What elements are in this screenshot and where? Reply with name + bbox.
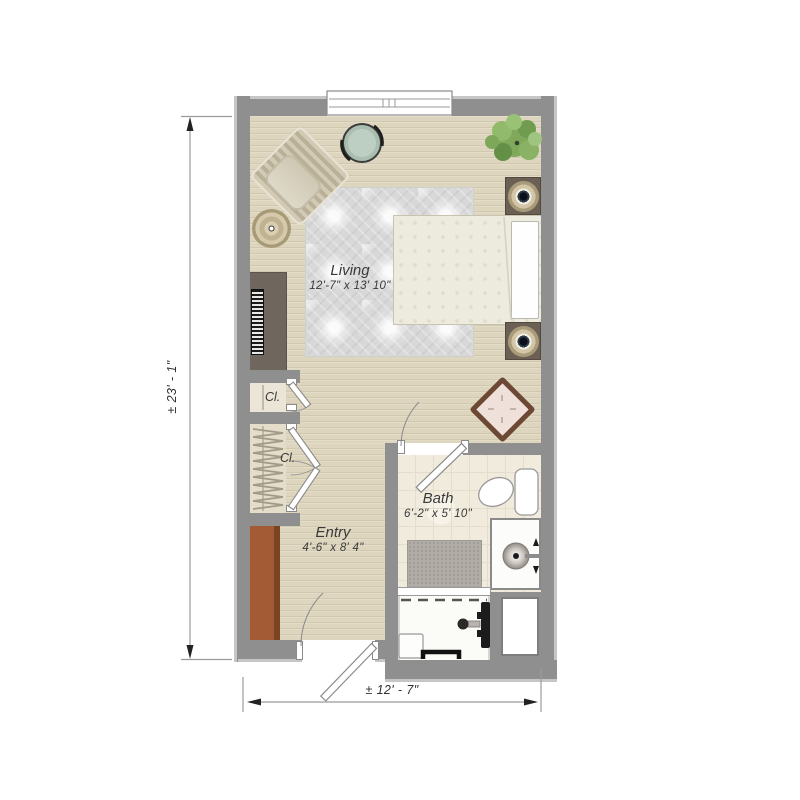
- window-icon: [327, 91, 452, 115]
- wall-right: [541, 96, 557, 682]
- bath-mat: [407, 540, 482, 590]
- closet-upper-jamb-top: [286, 378, 297, 385]
- closet-lower-floor: [250, 424, 286, 513]
- bath-door-jamb-left: [397, 440, 405, 454]
- dimension-width-label: ± 12' - 7": [322, 683, 462, 697]
- closet-lower-jamb-bottom: [286, 505, 297, 512]
- wall-bottom-entry-left: [238, 640, 302, 662]
- entry-door-jamb-left: [296, 641, 303, 660]
- living-dims: 12'-7" x 13' 10": [280, 280, 420, 293]
- floor-plan: Living 12'-7" x 13' 10" Entry 4'-6" x 8'…: [0, 0, 800, 800]
- living-name: Living: [280, 262, 420, 279]
- closet-lower-label: Cl.: [280, 451, 295, 465]
- bath-door-jamb-right: [461, 440, 469, 454]
- closet-upper-label: Cl.: [265, 390, 280, 404]
- wall-bath-bottom: [385, 660, 557, 682]
- utility-closet: [501, 597, 539, 656]
- dimension-height-label: ± 23' - 1": [165, 322, 179, 452]
- dimension-line-vertical: [181, 117, 232, 660]
- table-lamp-bottom-icon: [508, 326, 539, 357]
- entry-name: Entry: [273, 524, 393, 541]
- entry-label: Entry 4'-6" x 8' 4": [273, 524, 393, 555]
- entry-door-jamb-right: [372, 641, 379, 660]
- closet-upper-jamb-bottom: [286, 404, 297, 411]
- table-lamp-top-icon: [508, 181, 539, 212]
- wall-bath-top: [463, 443, 541, 455]
- bath-label: Bath 6'-2" x 5' 10": [378, 490, 498, 521]
- shower-floor: [398, 592, 490, 662]
- shower-curtain-rail: [397, 587, 491, 596]
- living-label: Living 12'-7" x 13' 10": [280, 262, 420, 293]
- round-table: [342, 123, 382, 163]
- closet-lower-jamb-top: [286, 423, 297, 430]
- bed-pillow: [511, 221, 539, 319]
- entry-dims: 4'-6" x 8' 4": [273, 542, 393, 555]
- sink-vanity: [490, 518, 541, 590]
- side-table: [252, 209, 291, 248]
- dresser-vent: [251, 289, 264, 355]
- bath-dims: 6'-2" x 5' 10": [378, 508, 498, 521]
- wall-top-left: [238, 96, 327, 116]
- bath-name: Bath: [378, 490, 498, 507]
